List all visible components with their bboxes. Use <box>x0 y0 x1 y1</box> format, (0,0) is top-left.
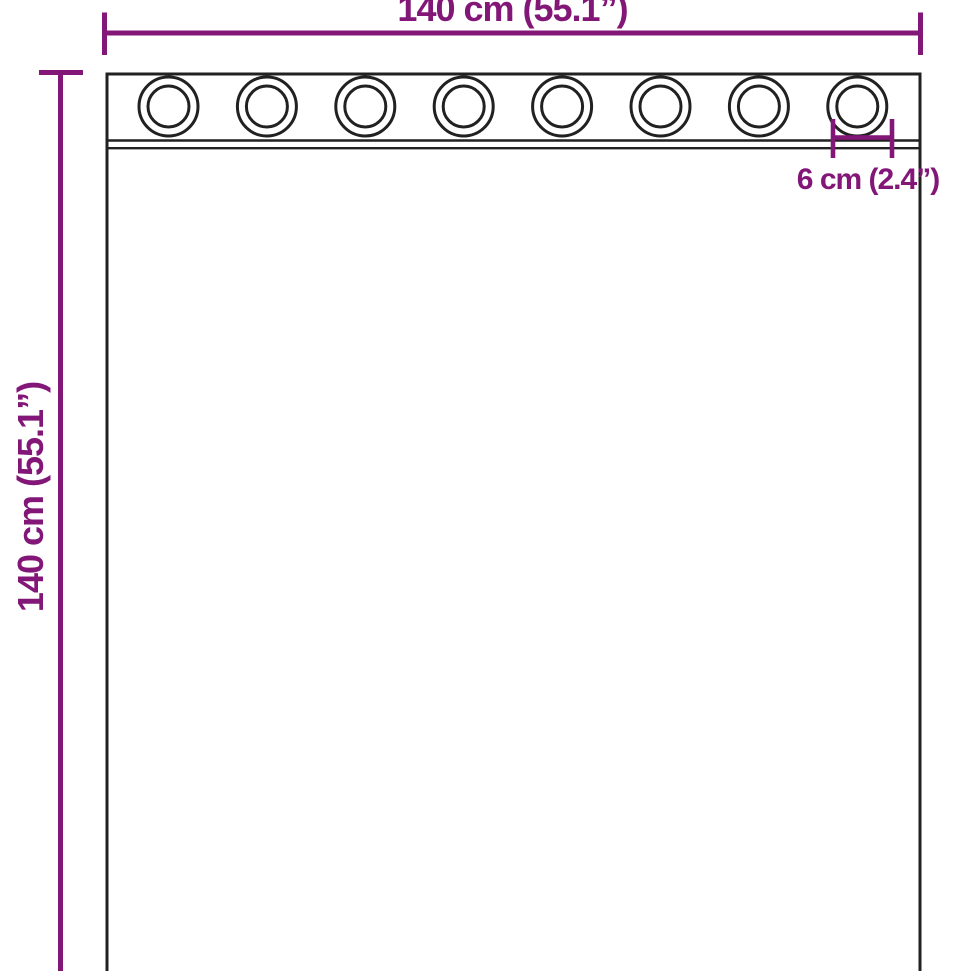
grommet <box>533 77 592 136</box>
grommet <box>139 77 198 136</box>
grommet <box>237 77 296 136</box>
grommet <box>336 77 395 136</box>
curtain-outline <box>107 74 920 971</box>
grommet <box>828 77 887 136</box>
width-dimension-label: 140 cm (55.1”) <box>104 0 921 30</box>
dimension-diagram: 140 cm (55.1”) 140 cm (55.1”) 6 cm (2.4”… <box>0 0 970 971</box>
grommets <box>139 77 887 136</box>
grommet <box>631 77 690 136</box>
height-dimension-label: 140 cm (55.1”) <box>10 382 52 612</box>
grommet <box>434 77 493 136</box>
curtain-diagram-canvas <box>0 0 970 971</box>
grommet-dimension-label: 6 cm (2.4”) <box>770 164 966 196</box>
grommet <box>729 77 788 136</box>
